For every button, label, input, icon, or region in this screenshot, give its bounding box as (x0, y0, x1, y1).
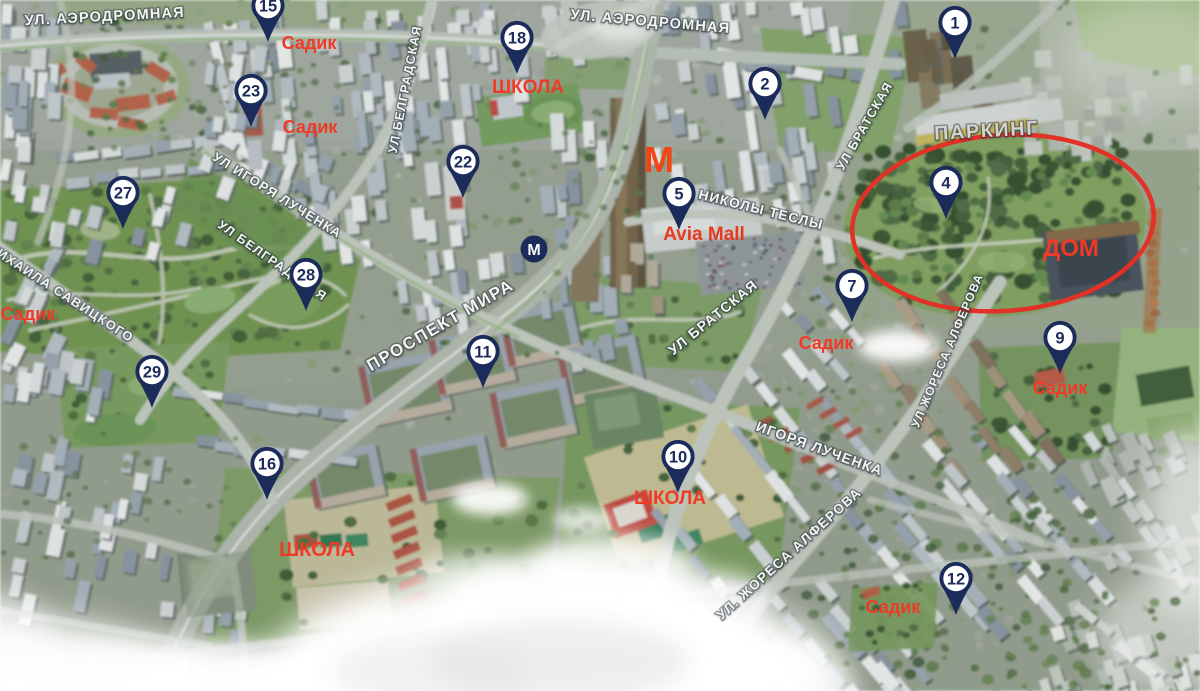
svg-text:7: 7 (847, 277, 856, 295)
svg-text:16: 16 (258, 455, 276, 473)
svg-text:15: 15 (259, 0, 277, 15)
svg-text:4: 4 (941, 174, 951, 192)
svg-text:5: 5 (674, 185, 683, 203)
svg-text:12: 12 (947, 570, 965, 588)
svg-text:29: 29 (143, 363, 161, 381)
svg-text:Садик: Садик (283, 117, 339, 137)
svg-text:Садик: Садик (1033, 378, 1089, 398)
svg-text:22: 22 (454, 153, 472, 171)
svg-text:ДОМ: ДОМ (1043, 235, 1099, 262)
svg-text:23: 23 (242, 82, 260, 100)
svg-text:Avia Mall: Avia Mall (663, 224, 745, 245)
svg-text:9: 9 (1055, 329, 1064, 347)
svg-text:10: 10 (669, 448, 687, 466)
svg-text:М: М (527, 242, 540, 259)
svg-text:М: М (644, 139, 674, 180)
svg-text:11: 11 (474, 343, 491, 361)
svg-text:ШКОЛА: ШКОЛА (634, 488, 706, 509)
svg-text:Садик: Садик (1, 304, 57, 324)
svg-text:18: 18 (508, 29, 526, 47)
svg-text:Садик: Садик (866, 597, 922, 617)
svg-text:ШКОЛА: ШКОЛА (279, 539, 355, 561)
svg-text:Садик: Садик (799, 333, 855, 353)
svg-text:ШКОЛА: ШКОЛА (492, 77, 564, 98)
svg-text:27: 27 (114, 184, 132, 202)
svg-text:1: 1 (950, 14, 959, 32)
svg-text:28: 28 (297, 266, 315, 284)
svg-text:Садик: Садик (282, 33, 338, 53)
svg-text:2: 2 (760, 75, 769, 93)
